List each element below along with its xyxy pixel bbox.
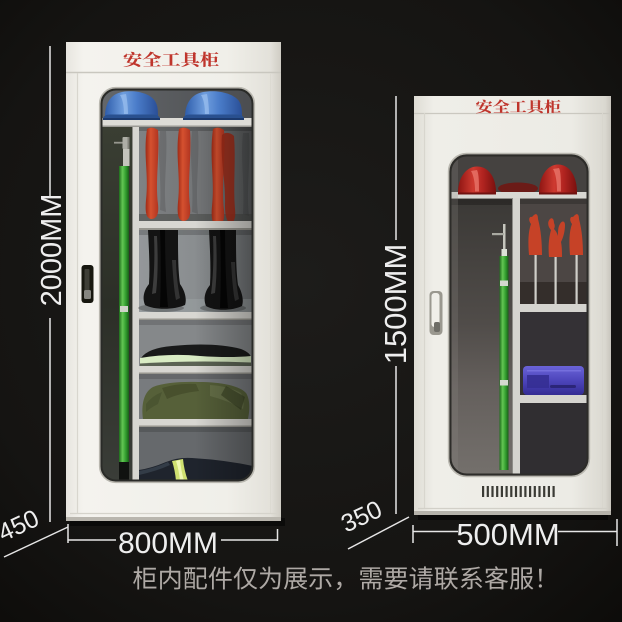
svg-text:2000MM: 2000MM [36, 194, 68, 307]
svg-text:1500MM: 1500MM [378, 244, 413, 365]
svg-text:500MM: 500MM [456, 517, 559, 552]
svg-text:800MM: 800MM [118, 527, 218, 560]
